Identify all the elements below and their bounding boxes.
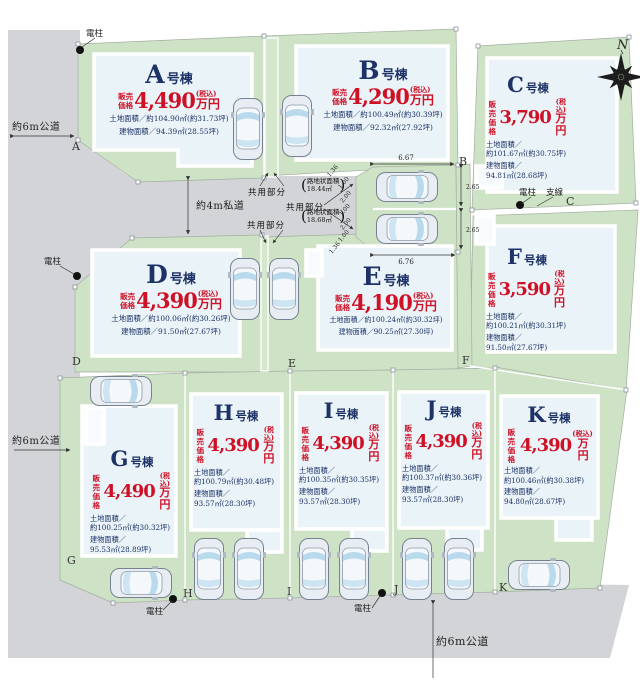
building-e-porch xyxy=(306,250,322,276)
lot-a-info: A号棟 販売価格 4,490 (税込)万円 土地面積／約104.90㎡(約31.… xyxy=(104,62,234,137)
common-area-label-3: 共用部分 xyxy=(247,219,285,231)
lot-d-price: 販売価格 4,390 (税込)万円 xyxy=(98,290,244,311)
pole-label-left: 電柱 xyxy=(44,255,61,267)
lot-d-land-area: 土地面積／約100.06㎡(約30.26坪) xyxy=(98,314,244,324)
lot-b-building-area: 建物面積／92.32㎡(27.92坪) xyxy=(320,123,446,133)
lot-e-info: E号棟 販売価格 4,190 (税込)万円 土地面積／約100.24㎡(約30.… xyxy=(324,264,448,338)
pole-dot xyxy=(76,46,84,54)
lot-c-building-area: 建物面積／94.81㎡(28.68坪) xyxy=(486,161,570,180)
lot-g-building-area: 建物面積／95.53㎡(28.89坪) xyxy=(90,535,174,554)
paren-close: ) xyxy=(339,178,345,193)
lot-d-building-area: 建物面積／91.50㎡(27.67坪) xyxy=(98,327,244,337)
lot-a-price: 販売価格 4,490 (税込)万円 xyxy=(104,90,234,111)
side-corridor xyxy=(456,164,472,368)
lot-d-info: D号棟 販売価格 4,390 (税込)万円 土地面積／約100.06㎡(約30.… xyxy=(98,262,244,337)
lot-e-price: 販売価格 4,190 (税込)万円 xyxy=(324,292,448,313)
lot-k-building-area: 建物面積／94.80㎡(28.67坪) xyxy=(504,487,594,506)
svg-text:A: A xyxy=(71,140,81,153)
lot-e-title: E号棟 xyxy=(324,264,448,289)
svg-text:E: E xyxy=(288,357,296,370)
lot-a-title: A号棟 xyxy=(104,62,234,87)
paren-close: ) xyxy=(339,209,345,224)
lot-k-title: K号棟 xyxy=(504,404,594,425)
building-k-porch xyxy=(556,518,592,540)
lot-f-land-area: 土地面積／約100.21㎡(約30.31坪) xyxy=(486,312,568,331)
lot-f-title: F号棟 xyxy=(486,246,568,267)
road-label-6m-top: 約6m公道 xyxy=(12,118,60,133)
lot-b-price: 販売価格 4,290 (税込)万円 xyxy=(320,86,446,107)
lot-f-building-area: 建物面積／91.50㎡(27.67坪) xyxy=(486,333,568,352)
svg-text:J: J xyxy=(393,583,398,596)
lot-j-land-area: 土地面積／約100.37㎡(約30.36坪) xyxy=(402,464,486,483)
lot-g-price: 販売価格 4,490 (税込)万円 xyxy=(90,472,174,512)
lot-j-price: 販売価格 4,390 (税込)万円 xyxy=(402,422,486,462)
lot-d-title: D号棟 xyxy=(98,262,244,287)
lot-j-title: J号棟 xyxy=(402,398,486,419)
pole-dot xyxy=(169,595,177,603)
lot-a-land-area: 土地面積／約104.90㎡(約31.73坪) xyxy=(104,114,234,124)
walkway-de xyxy=(261,236,268,371)
lot-g-land-area: 土地面積／約100.25㎡(約30.32坪) xyxy=(90,514,174,533)
pole-dot xyxy=(516,201,524,209)
lot-c-info: C号棟 販売価格 3,790 (税込)万円 土地面積／約101.67㎡(約30.… xyxy=(486,74,570,180)
road-label-6m-left: 約6m公道 xyxy=(12,432,60,447)
lot-k-info: K号棟 販売価格 4,390 (税込)万円 土地面積／約100.46㎡(約30.… xyxy=(504,404,594,507)
lot-i-land-area: 土地面積／約100.35㎡(約30.35坪) xyxy=(299,466,383,485)
svg-text:H: H xyxy=(183,587,193,600)
pole-label-top-left: 電柱 xyxy=(86,27,103,39)
lot-f-info: F号棟 販売価格 3,590 (税込)万円 土地面積／約100.21㎡(約30.… xyxy=(486,246,568,352)
svg-text:K: K xyxy=(499,581,508,594)
lot-b-title: B号棟 xyxy=(320,58,446,83)
site-plan: 6.67 6.76 2.65 2.65 1.36 1.00 2.00 1.00 … xyxy=(0,0,640,694)
lot-g-title: G号棟 xyxy=(90,448,174,469)
walkway-ab xyxy=(265,38,278,177)
lot-h-price: 販売価格 4,390 (税込)万円 xyxy=(194,426,278,466)
lot-j-info: J号棟 販売価格 4,390 (税込)万円 土地面積／約100.37㎡(約30.… xyxy=(402,398,486,504)
svg-text:2.65: 2.65 xyxy=(466,184,480,191)
lot-i-info: I号棟 販売価格 4,390 (税込)万円 土地面積／約100.35㎡(約30.… xyxy=(299,400,383,506)
lot-c-title: C号棟 xyxy=(486,74,570,95)
pole-label-bottom-j: 電柱 xyxy=(354,602,371,614)
common-area-label-1: 共用部分 xyxy=(248,186,286,198)
lot-h-building-area: 建物面積／93.57㎡(28.30坪) xyxy=(194,489,278,508)
pole-dot xyxy=(73,272,81,280)
pole-label-bottom-h: 電柱 xyxy=(146,605,163,617)
lot-k-price: 販売価格 4,390 (税込)万円 xyxy=(504,428,594,464)
lot-k-land-area: 土地面積／約100.46㎡(約30.38坪) xyxy=(504,466,594,485)
lot-c-land-area: 土地面積／約101.67㎡(約30.75坪) xyxy=(486,140,570,159)
flagpole-area-note-2: ( 路地状面積18.68㎡ ) xyxy=(301,209,345,224)
lot-h-title: H号棟 xyxy=(194,402,278,423)
building-g-porch xyxy=(86,408,104,444)
lot-i-building-area: 建物面積／93.57㎡(28.30坪) xyxy=(299,487,383,506)
lot-i-title: I号棟 xyxy=(299,400,383,421)
svg-text:B: B xyxy=(459,155,467,168)
pole-label-c: 電柱 xyxy=(519,186,536,198)
lot-b-land-area: 土地面積／約100.49㎡(約30.39坪) xyxy=(320,110,446,120)
flagpole-value: 18.68㎡ xyxy=(307,217,340,224)
svg-text:C: C xyxy=(566,195,574,208)
road-label-6m-bottom: 約6m公道 xyxy=(436,633,489,649)
svg-text:F: F xyxy=(462,354,470,367)
lot-f-price: 販売価格 3,590 (税込)万円 xyxy=(486,270,568,310)
lot-i-price: 販売価格 4,390 (税込)万円 xyxy=(299,424,383,464)
svg-text:I: I xyxy=(287,585,291,598)
wire-label: 支線 xyxy=(546,186,563,198)
svg-text:D: D xyxy=(72,355,81,368)
lot-j-building-area: 建物面積／93.57㎡(28.30坪) xyxy=(402,485,486,504)
svg-text:6.67: 6.67 xyxy=(398,154,414,162)
lot-b-info: B号棟 販売価格 4,290 (税込)万円 土地面積／約100.49㎡(約30.… xyxy=(320,58,446,133)
pole-dot xyxy=(378,589,386,597)
lot-e-building-area: 建物面積／90.25㎡(27.30坪) xyxy=(324,328,448,337)
svg-text:G: G xyxy=(67,554,76,567)
lot-h-info: H号棟 販売価格 4,390 (税込)万円 土地面積／約100.79㎡(約30.… xyxy=(194,402,278,508)
svg-text:N: N xyxy=(616,38,629,53)
lot-a-building-area: 建物面積／94.39㎡(28.55坪) xyxy=(104,127,234,137)
lot-h-land-area: 土地面積／約100.79㎡(約30.48坪) xyxy=(194,468,278,487)
road-label-4m-private: 約4m私道 xyxy=(196,197,244,212)
lot-g-info: G号棟 販売価格 4,490 (税込)万円 土地面積／約100.25㎡(約30.… xyxy=(90,448,174,554)
lot-e-land-area: 土地面積／約100.24㎡(約30.32坪) xyxy=(324,316,448,325)
flagpole-value: 18.44㎡ xyxy=(307,186,340,193)
lot-c-price: 販売価格 3,790 (税込)万円 xyxy=(486,98,570,138)
flagpole-area-note-1: ( 路地状面積18.44㎡ ) xyxy=(301,178,345,193)
svg-text:2.65: 2.65 xyxy=(466,227,480,234)
